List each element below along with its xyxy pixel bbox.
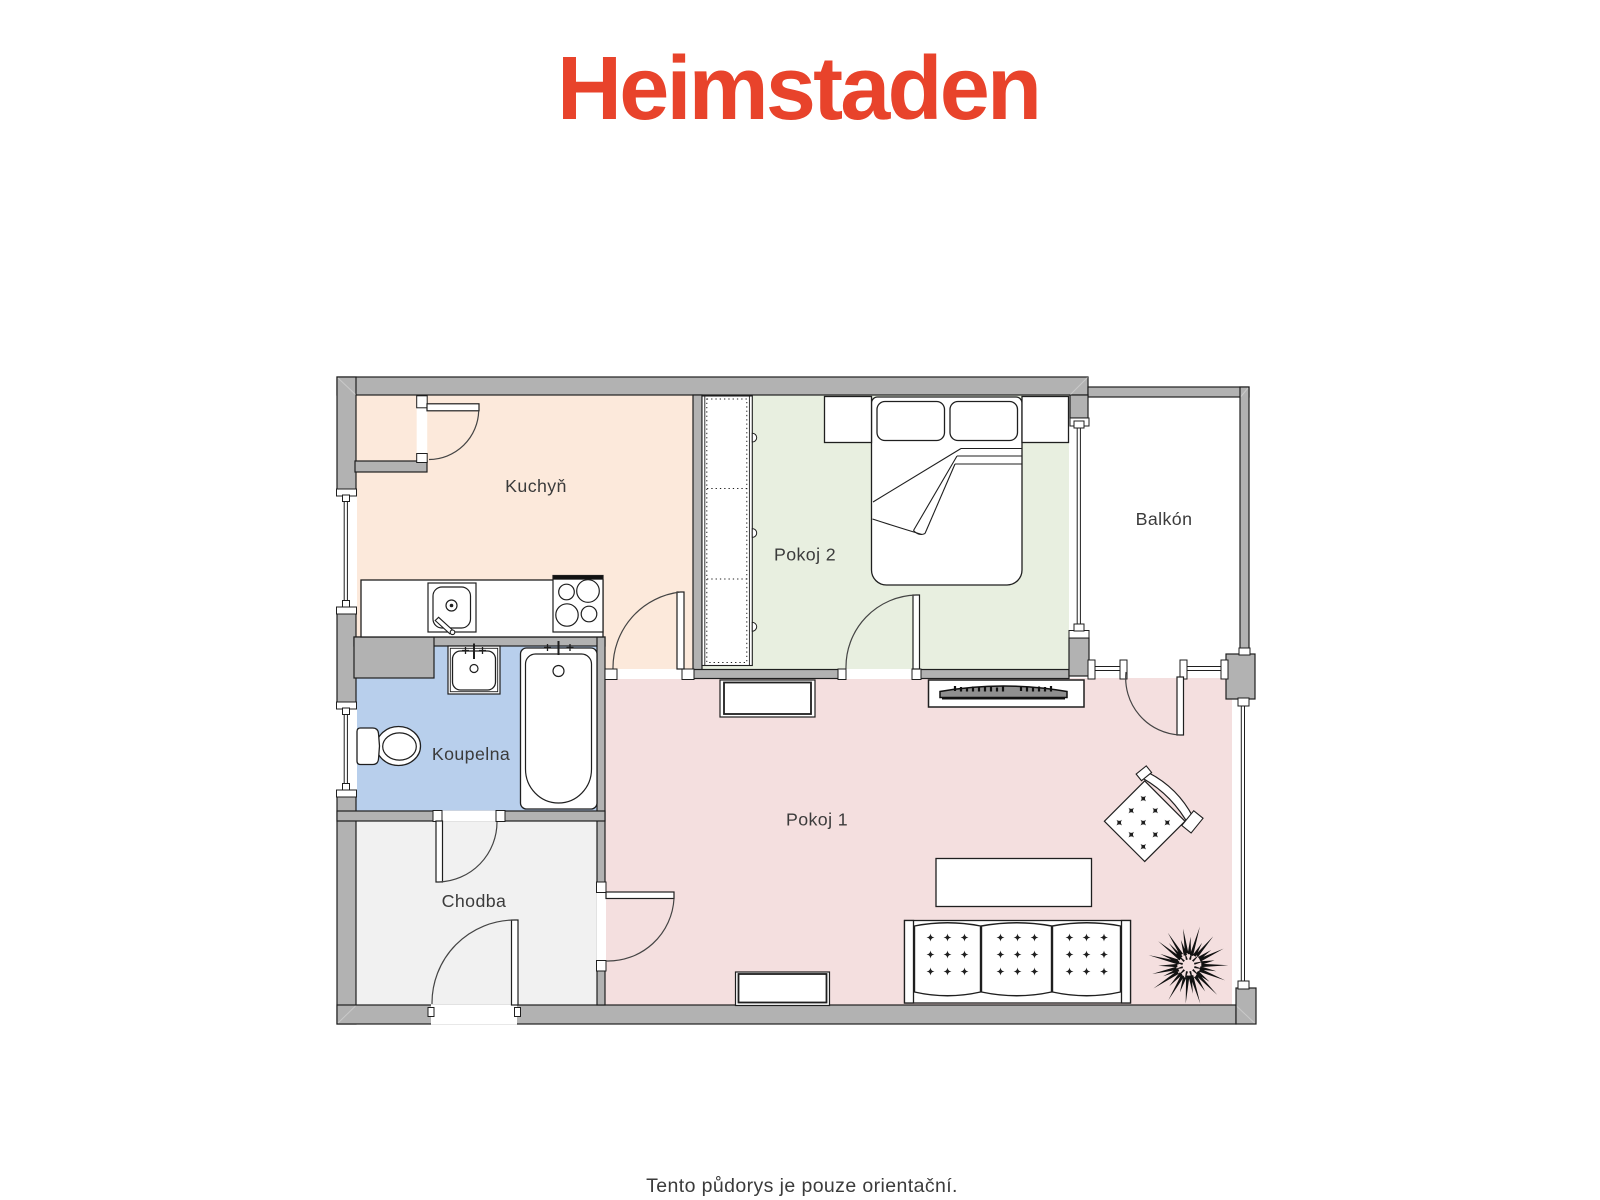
svg-text:Balkón: Balkón — [1136, 509, 1193, 529]
svg-text:Chodba: Chodba — [442, 891, 507, 911]
svg-text:Heimstaden: Heimstaden — [557, 39, 1039, 139]
svg-text:Pokoj 1: Pokoj 1 — [786, 810, 848, 830]
svg-text:Kuchyň: Kuchyň — [505, 476, 567, 496]
svg-text:Tento půdorys je pouze orienta: Tento půdorys je pouze orientační. — [646, 1175, 958, 1197]
svg-text:Pokoj 2: Pokoj 2 — [774, 545, 836, 565]
svg-text:Koupelna: Koupelna — [432, 744, 510, 764]
